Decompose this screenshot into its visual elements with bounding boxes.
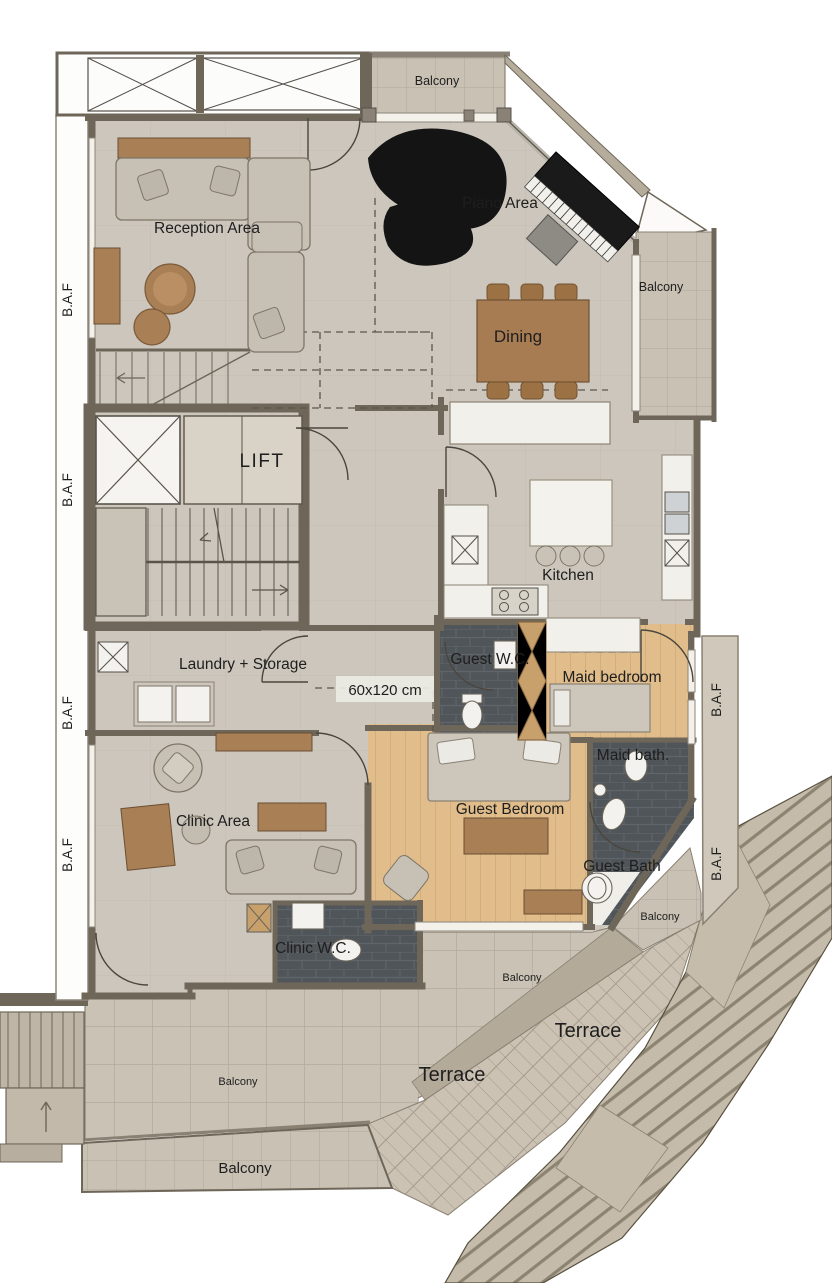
bedroom-console	[524, 890, 582, 914]
floor-plan: Balcony Balcony Piano Area Reception Are…	[0, 0, 832, 1283]
label-balcony-right: Balcony	[639, 280, 684, 294]
toilet-guest-wc	[462, 701, 482, 729]
side-table	[134, 309, 170, 345]
label-maid-bedroom: Maid bedroom	[562, 669, 661, 686]
maid-cabinet	[546, 618, 640, 652]
label-terrace-left: Terrace	[419, 1064, 486, 1086]
label-baf-right-2: B.A.F	[709, 847, 724, 881]
label-dimension-note: 60x120 cm	[348, 682, 421, 699]
label-lift: LIFT	[239, 451, 284, 472]
label-clinic-wc: Clinic W.C.	[275, 940, 351, 957]
kitchen-island	[530, 480, 612, 546]
label-clinic-area: Clinic Area	[176, 813, 250, 830]
label-baf-left-4: B.A.F	[60, 838, 75, 872]
clinic-desk	[121, 804, 175, 871]
label-balcony-small-right: Balcony	[640, 911, 680, 923]
sink	[665, 492, 689, 512]
bedroom-table	[464, 818, 548, 854]
label-baf-right-1: B.A.F	[709, 683, 724, 717]
sofa-vertical	[248, 252, 304, 352]
dryer	[176, 686, 210, 722]
label-piano-area: Piano Area	[462, 195, 538, 212]
floor-plan-canvas: Balcony Balcony Piano Area Reception Are…	[0, 0, 832, 1283]
label-guest-bedroom: Guest Bedroom	[456, 801, 565, 818]
balcony-right-floor	[636, 232, 716, 420]
label-balcony-bottom: Balcony	[218, 1160, 272, 1177]
label-laundry-storage: Laundry + Storage	[179, 656, 307, 673]
sink-clinic-wc	[292, 903, 324, 929]
clinic-coffee-table	[258, 803, 326, 831]
external-stairs	[0, 993, 88, 1162]
label-maid-bath: Maid bath.	[597, 747, 669, 764]
wood-shelf	[216, 733, 312, 751]
label-reception-area: Reception Area	[154, 220, 260, 237]
label-kitchen: Kitchen	[542, 567, 594, 584]
label-dining: Dining	[494, 327, 542, 346]
stove	[492, 588, 538, 615]
label-guest-wc: Guest W.C.	[450, 651, 529, 668]
label-balcony-mid: Balcony	[502, 972, 542, 984]
label-baf-left-2: B.A.F	[60, 473, 75, 507]
tv-unit	[94, 248, 120, 324]
label-guest-bath: Guest Bath	[583, 858, 661, 875]
washer	[138, 686, 172, 722]
label-balcony-top: Balcony	[415, 74, 460, 88]
label-terrace-right: Terrace	[555, 1020, 622, 1042]
label-balcony-large: Balcony	[218, 1076, 258, 1088]
label-baf-left-1: B.A.F	[60, 283, 75, 317]
console-table	[118, 138, 250, 158]
kitchen-counter-top	[450, 402, 610, 444]
label-baf-left-3: B.A.F	[60, 696, 75, 730]
